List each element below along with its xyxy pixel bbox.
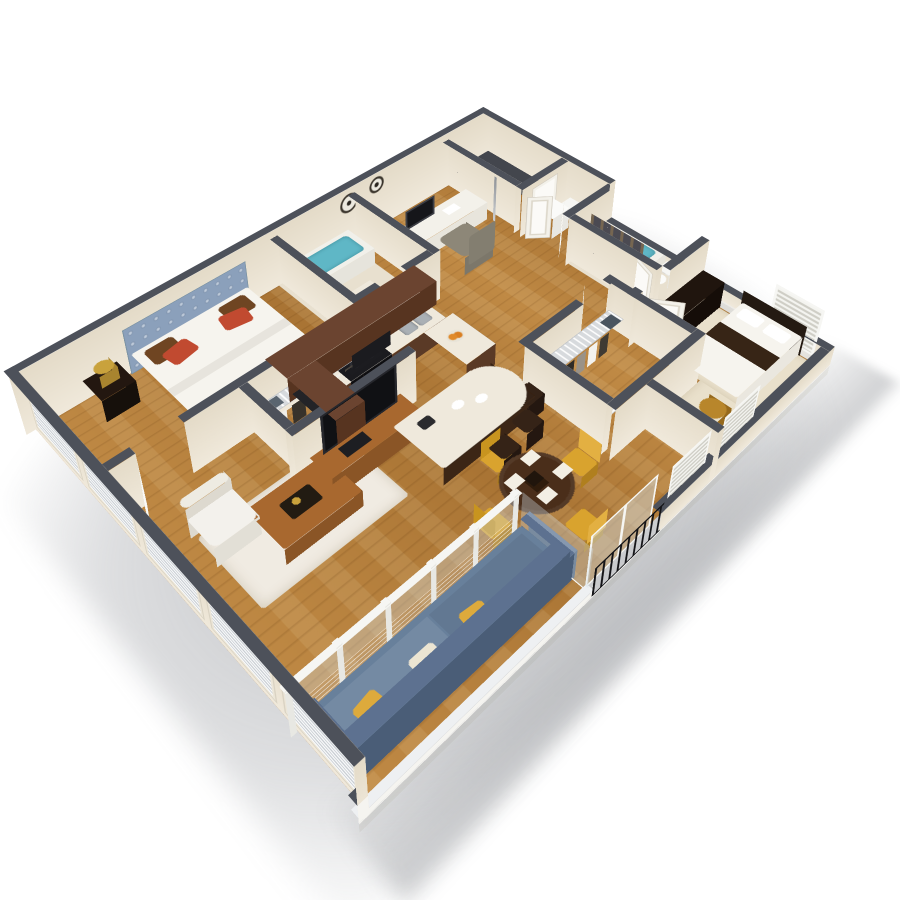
scene xyxy=(0,0,900,900)
wall-clock-2 xyxy=(369,173,384,196)
apartment-plan xyxy=(22,159,830,824)
floorplan-3d-render xyxy=(0,0,900,900)
bifold-linen-a xyxy=(525,196,553,239)
